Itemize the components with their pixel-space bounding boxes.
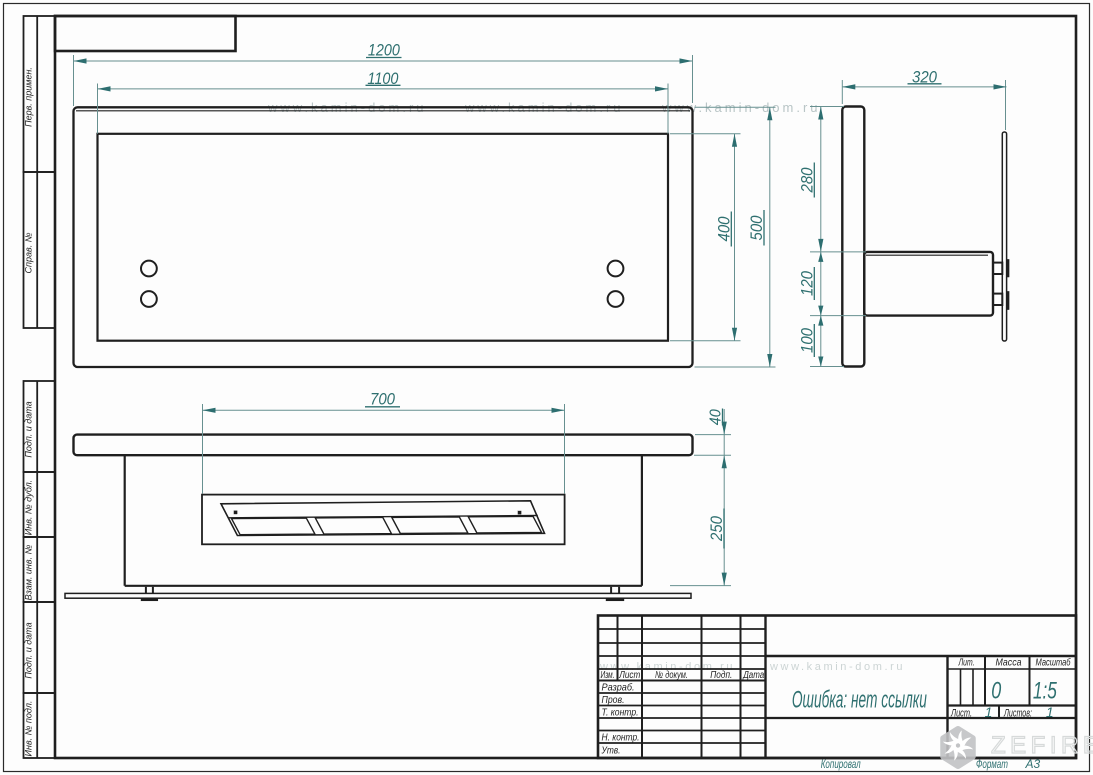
svg-text:400: 400 bbox=[715, 216, 734, 241]
svg-text:Изм.: Изм. bbox=[601, 670, 615, 681]
svg-text:Пров.: Пров. bbox=[602, 694, 625, 706]
svg-text:120: 120 bbox=[798, 271, 817, 296]
svg-text:Перв. примен.: Перв. примен. bbox=[24, 67, 34, 127]
svg-text:1: 1 bbox=[1046, 704, 1054, 720]
svg-text:Инв. № подл.: Инв. № подл. bbox=[24, 701, 34, 757]
svg-text:Лист.: Лист. bbox=[950, 708, 972, 720]
svg-text:1100: 1100 bbox=[367, 69, 398, 88]
svg-text:1:5: 1:5 bbox=[1033, 677, 1057, 704]
svg-text:Подп. и дата: Подп. и дата bbox=[24, 401, 34, 457]
svg-text:100: 100 bbox=[798, 328, 817, 353]
svg-text:Масса: Масса bbox=[996, 658, 1022, 669]
svg-text:Разраб.: Разраб. bbox=[602, 682, 635, 694]
svg-text:Формат: Формат bbox=[976, 759, 1008, 771]
svg-text:40: 40 bbox=[708, 409, 725, 425]
svg-text:www.kamin-dom.ru: www.kamin-dom.ru bbox=[769, 661, 905, 673]
svg-text:320: 320 bbox=[912, 68, 937, 87]
svg-text:Утв.: Утв. bbox=[601, 745, 621, 757]
svg-text:Справ. №: Справ. № bbox=[24, 232, 34, 273]
svg-text:Взам. инв. №: Взам. инв. № bbox=[24, 544, 34, 600]
svg-text:1: 1 bbox=[985, 704, 993, 720]
svg-text:280: 280 bbox=[798, 167, 817, 193]
svg-text:Листов:: Листов: bbox=[1003, 708, 1032, 720]
svg-text:250: 250 bbox=[707, 516, 726, 542]
svg-text:Ошибка: нет ссылки: Ошибка: нет ссылки bbox=[792, 687, 927, 714]
svg-text:1200: 1200 bbox=[368, 40, 400, 59]
svg-text:№ докум.: № докум. bbox=[655, 670, 688, 681]
svg-text:500: 500 bbox=[747, 215, 766, 240]
svg-text:ZEFIRE: ZEFIRE bbox=[991, 732, 1093, 759]
svg-text:Дата: Дата bbox=[742, 670, 764, 681]
svg-text:Инв. № дубл.: Инв. № дубл. bbox=[24, 480, 34, 535]
svg-text:Масштаб: Масштаб bbox=[1036, 657, 1071, 669]
svg-text:Подп.: Подп. bbox=[710, 670, 732, 681]
svg-text:0: 0 bbox=[991, 677, 1001, 704]
svg-text:Подп. и дата: Подп. и дата bbox=[24, 622, 34, 678]
svg-text:Лист: Лист bbox=[618, 670, 640, 681]
svg-text:700: 700 bbox=[370, 390, 395, 409]
svg-text:Н. контр.: Н. контр. bbox=[602, 732, 640, 744]
svg-text:Т. контр.: Т. контр. bbox=[602, 707, 639, 719]
svg-text:Лит.: Лит. bbox=[958, 658, 975, 669]
svg-text:Копировал: Копировал bbox=[821, 759, 861, 771]
